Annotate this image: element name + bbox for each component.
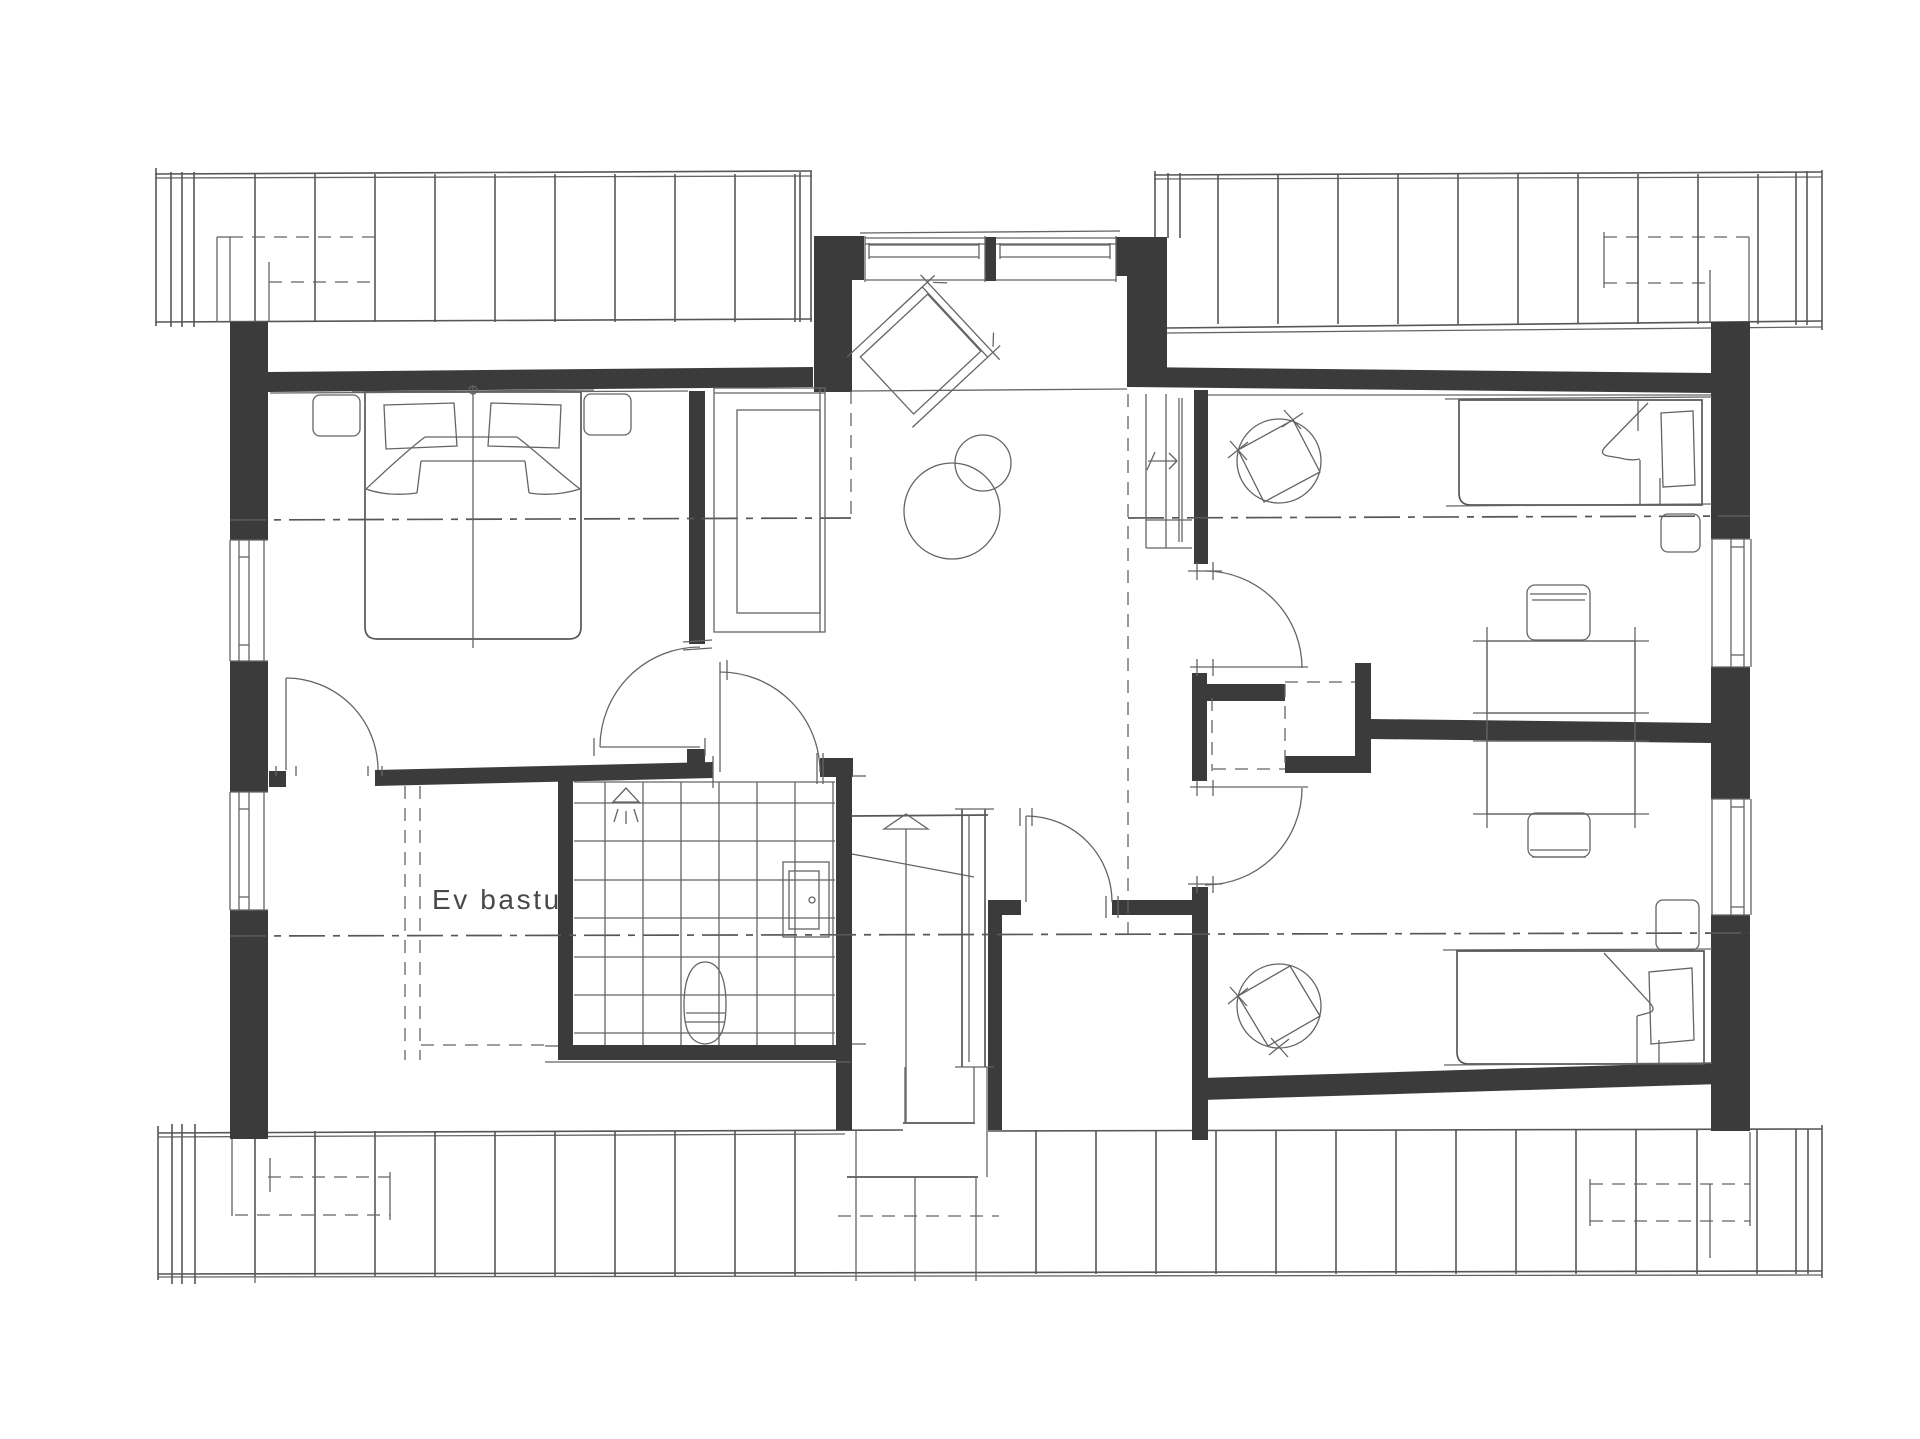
svg-text:Ev bastu: Ev bastu <box>432 884 562 915</box>
